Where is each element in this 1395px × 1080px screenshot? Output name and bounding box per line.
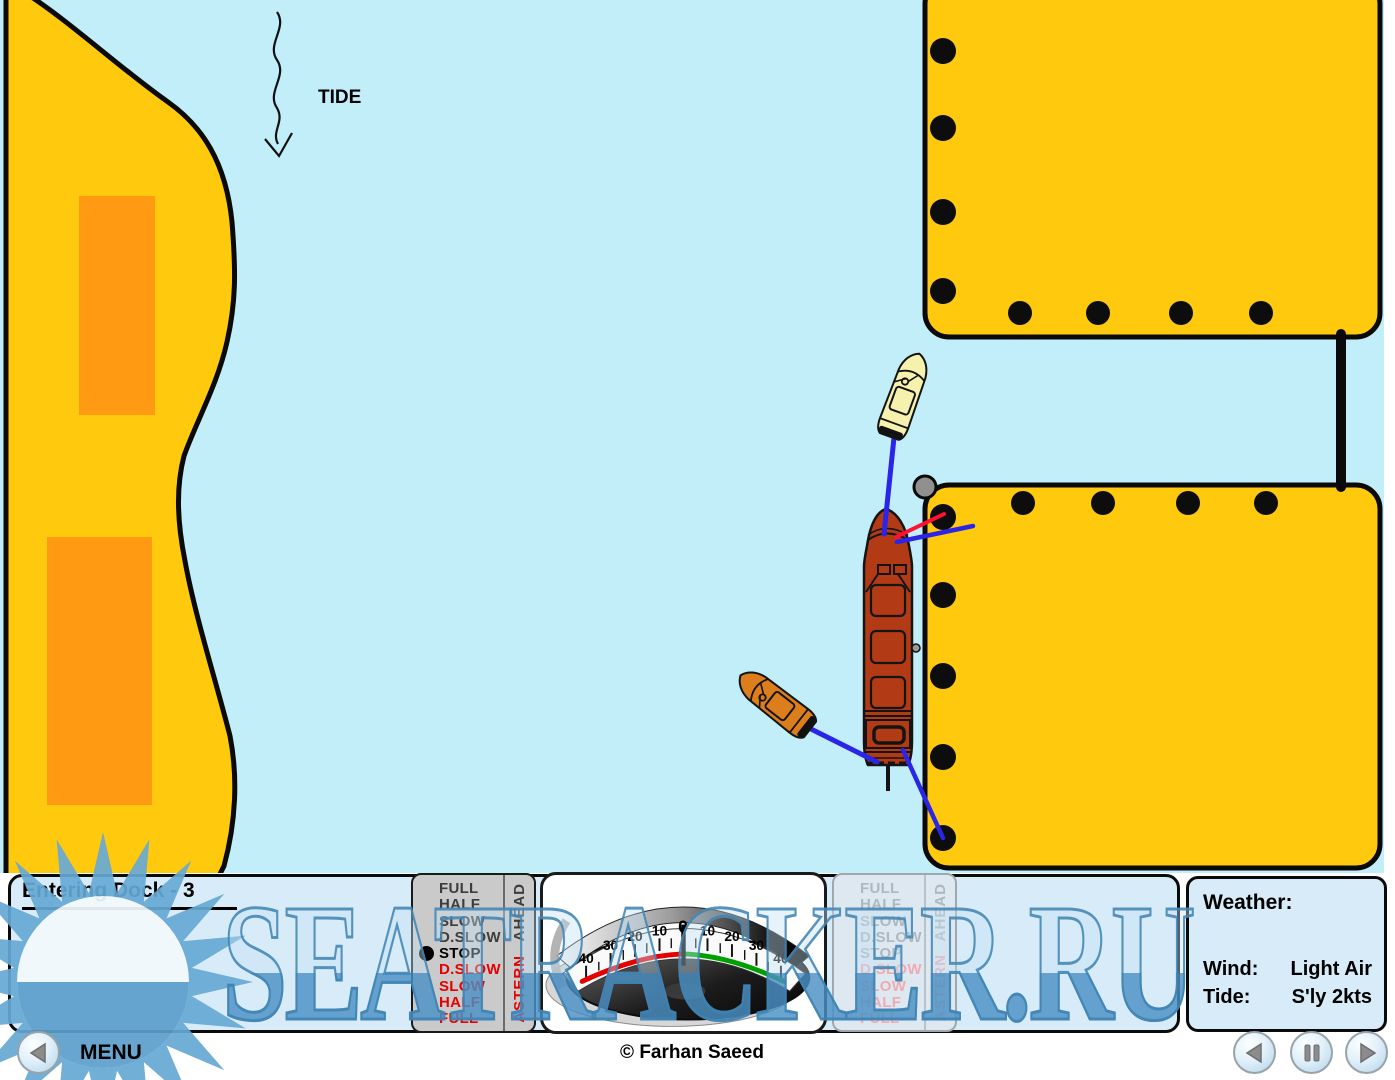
cargo-ship bbox=[864, 509, 920, 791]
bollard[interactable] bbox=[1091, 491, 1115, 515]
bollard[interactable] bbox=[1086, 301, 1110, 325]
telegraph-dslow-astern[interactable]: D.SLOW bbox=[439, 962, 503, 978]
svg-text:40: 40 bbox=[773, 951, 789, 966]
svg-text:10: 10 bbox=[700, 923, 716, 938]
telegraph-dslow-ahead[interactable]: D.SLOW bbox=[439, 930, 503, 946]
previous-icon bbox=[1244, 1042, 1266, 1064]
svg-text:40: 40 bbox=[578, 951, 594, 966]
bollard[interactable] bbox=[930, 115, 956, 141]
simulator-stage: TIDE bbox=[0, 0, 1395, 1080]
svg-text:20: 20 bbox=[627, 929, 643, 944]
telegraph-half-ahead[interactable]: HALF bbox=[439, 897, 503, 913]
telegraph-half-astern[interactable]: HALF bbox=[439, 995, 503, 1011]
telegraph-handle-dot bbox=[419, 946, 434, 961]
scenario-title: Entering Dock - 3 bbox=[22, 879, 237, 910]
telegraph-full-ahead[interactable]: FULL bbox=[439, 881, 503, 897]
ahead-label: AHEAD bbox=[511, 883, 528, 941]
engine-telegraph-2-disabled: FULL HALF SLOW D.SLOW STOP D.SLOW SLOW H… bbox=[832, 873, 957, 1032]
bollard[interactable] bbox=[1169, 301, 1193, 325]
svg-text:30: 30 bbox=[603, 938, 619, 953]
weather-heading: Weather: bbox=[1203, 891, 1372, 915]
next-icon bbox=[1356, 1042, 1378, 1064]
bollard[interactable] bbox=[930, 744, 956, 770]
pause-button[interactable] bbox=[1290, 1031, 1333, 1074]
svg-text:10: 10 bbox=[652, 923, 668, 938]
dock-south bbox=[925, 485, 1380, 868]
bollard[interactable] bbox=[930, 582, 956, 608]
bollard[interactable] bbox=[930, 199, 956, 225]
telegraph-slow-astern[interactable]: SLOW bbox=[439, 979, 503, 995]
play-forward-button[interactable] bbox=[1345, 1031, 1388, 1074]
tug-aft[interactable] bbox=[731, 663, 819, 741]
bollard[interactable] bbox=[1254, 491, 1278, 515]
step-back-button[interactable] bbox=[1233, 1031, 1276, 1074]
svg-text:30: 30 bbox=[749, 938, 765, 953]
bollard[interactable] bbox=[1249, 301, 1273, 325]
author-credit: © Farhan Saeed bbox=[0, 1042, 1384, 1064]
bollard[interactable] bbox=[1011, 491, 1035, 515]
wind-label: Wind: bbox=[1203, 955, 1258, 983]
shore-building-north bbox=[79, 196, 155, 415]
tide-row-label: Tide: bbox=[1203, 983, 1250, 1011]
dock-north bbox=[925, 0, 1380, 337]
astern-label: ASTERN bbox=[511, 955, 528, 1023]
harbour-scene: TIDE bbox=[0, 0, 1384, 873]
tug-forward[interactable] bbox=[875, 349, 933, 442]
tide-indicator: TIDE bbox=[265, 12, 361, 156]
pivot-dot bbox=[912, 644, 920, 652]
bollard[interactable] bbox=[1008, 301, 1032, 325]
rudder-indicator[interactable]: 40 30 20 10 0 10 20 30 40 bbox=[540, 872, 827, 1034]
rudder-dial: 40 30 20 10 0 10 20 30 40 bbox=[546, 907, 809, 1026]
bollard[interactable] bbox=[930, 663, 956, 689]
shore-building-south bbox=[47, 537, 152, 805]
tide-label: TIDE bbox=[318, 87, 361, 108]
telegraph-stop[interactable]: STOP bbox=[439, 946, 503, 962]
bollard[interactable] bbox=[930, 278, 956, 304]
engine-telegraph[interactable]: FULL HALF SLOW D.SLOW STOP D.SLOW SLOW H… bbox=[411, 873, 536, 1033]
pause-icon bbox=[1302, 1043, 1322, 1063]
svg-text:20: 20 bbox=[724, 929, 740, 944]
corner-dolphin[interactable] bbox=[914, 476, 936, 498]
telegraph-slow-ahead[interactable]: SLOW bbox=[439, 914, 503, 930]
weather-panel: Weather: Wind: Light Air Tide: S'ly 2kts bbox=[1186, 876, 1387, 1032]
telegraph-full-astern[interactable]: FULL bbox=[439, 1011, 503, 1027]
bollard[interactable] bbox=[930, 38, 956, 64]
bollard[interactable] bbox=[1176, 491, 1200, 515]
wind-value: Light Air bbox=[1291, 955, 1372, 983]
tide-wavy-arrow bbox=[274, 12, 280, 144]
tide-value: S'ly 2kts bbox=[1292, 983, 1372, 1011]
